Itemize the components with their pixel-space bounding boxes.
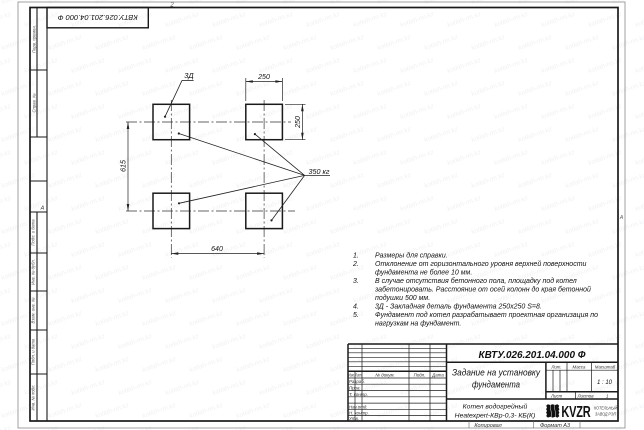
svg-text:Heatexpert-КВр-0,3- КБ(К): Heatexpert-КВр-0,3- КБ(К) [455,413,536,420]
svg-text:№ докум.: № докум. [375,373,394,378]
svg-text:Копировал: Копировал [474,423,501,429]
svg-text:КВТУ.026.201.04.000 Ф: КВТУ.026.201.04.000 Ф [58,13,138,22]
svg-text:В случае отсутствия бетонного: В случае отсутствия бетонного пола, площ… [375,277,577,285]
svg-text:1 : 10: 1 : 10 [597,380,613,386]
svg-text:КОТЕЛЬНЫЙ: КОТЕЛЬНЫЙ [594,405,617,410]
svg-text:фундамента не более 10 мм.: фундамента не более 10 мм. [375,269,472,277]
svg-text:3.: 3. [353,278,359,285]
svg-text:Подп. и дата: Подп. и дата [31,219,36,246]
svg-text:Листов: Листов [577,394,595,399]
svg-text:Инв. № дубл.: Инв. № дубл. [31,259,36,285]
svg-text:250: 250 [257,74,270,81]
svg-text:А: А [619,215,624,221]
svg-text:подушки 500 мм.: подушки 500 мм. [375,294,430,302]
svg-text:3Д - Закладная деталь фундамен: 3Д - Закладная деталь фундамента 250х250… [375,303,542,311]
svg-text:Дата: Дата [431,373,444,378]
svg-text:Задание на установку: Задание на установку [452,368,540,378]
svg-text:Котел водогрейный: Котел водогрейный [463,403,528,411]
svg-text:Подп.: Подп. [414,373,426,378]
svg-text:Справ. №: Справ. № [32,93,37,112]
svg-text:Лит.: Лит. [550,364,561,369]
svg-text:250: 250 [295,116,302,129]
svg-text:Пров.: Пров. [349,386,361,391]
svg-text:Отклонение от горизонтального: Отклонение от горизонтального уровня вер… [375,260,587,268]
svg-text:А: А [40,206,45,212]
svg-text:Нач.отд.: Нач.отд. [349,404,368,409]
svg-text:640: 640 [211,246,223,253]
svg-text:615: 615 [121,160,128,172]
svg-text:Масса: Масса [573,364,587,369]
svg-text:4.: 4. [353,304,359,311]
svg-text:Разраб.: Разраб. [349,379,365,384]
svg-text:фундамента: фундамента [472,380,520,390]
svg-text:Масштаб: Масштаб [595,364,616,369]
svg-text:Взам. инв. №: Взам. инв. № [31,297,36,323]
svg-text:Лист: Лист [355,373,362,378]
svg-text:ЗАВОД РЭП: ЗАВОД РЭП [595,411,616,416]
svg-text:Лист: Лист [550,394,563,399]
svg-text:2.: 2. [352,261,359,268]
svg-text:3Д: 3Д [184,71,194,80]
svg-text:Подп. и дата: Подп. и дата [31,338,36,365]
svg-text:350 кг: 350 кг [309,167,330,176]
svg-text:Утв.: Утв. [349,416,359,421]
svg-text:Т. контр.: Т. контр. [349,392,368,397]
svg-text:КВТУ.026.201.04.000 Ф: КВТУ.026.201.04.000 Ф [479,350,586,361]
svg-text:Перв. примен.: Перв. примен. [32,25,37,53]
svg-text:1.: 1. [353,253,359,260]
svg-text:забетонировать. Расстояние от: забетонировать. Расстояние от осей колон… [374,286,591,294]
svg-text:5.: 5. [353,312,359,319]
svg-text:Фундамент под котел разрабатыв: Фундамент под котел разрабатывает проект… [375,311,598,319]
svg-text:KVZR: KVZR [561,403,591,420]
svg-text:Размеры для справки.: Размеры для справки. [375,252,448,260]
svg-text:нагрузкам на фундамент.: нагрузкам на фундамент. [375,320,461,328]
svg-text:Изм.: Изм. [349,373,355,378]
svg-text:Инв. № подл.: Инв. № подл. [31,385,36,411]
svg-text:Формат А3: Формат А3 [540,423,571,429]
